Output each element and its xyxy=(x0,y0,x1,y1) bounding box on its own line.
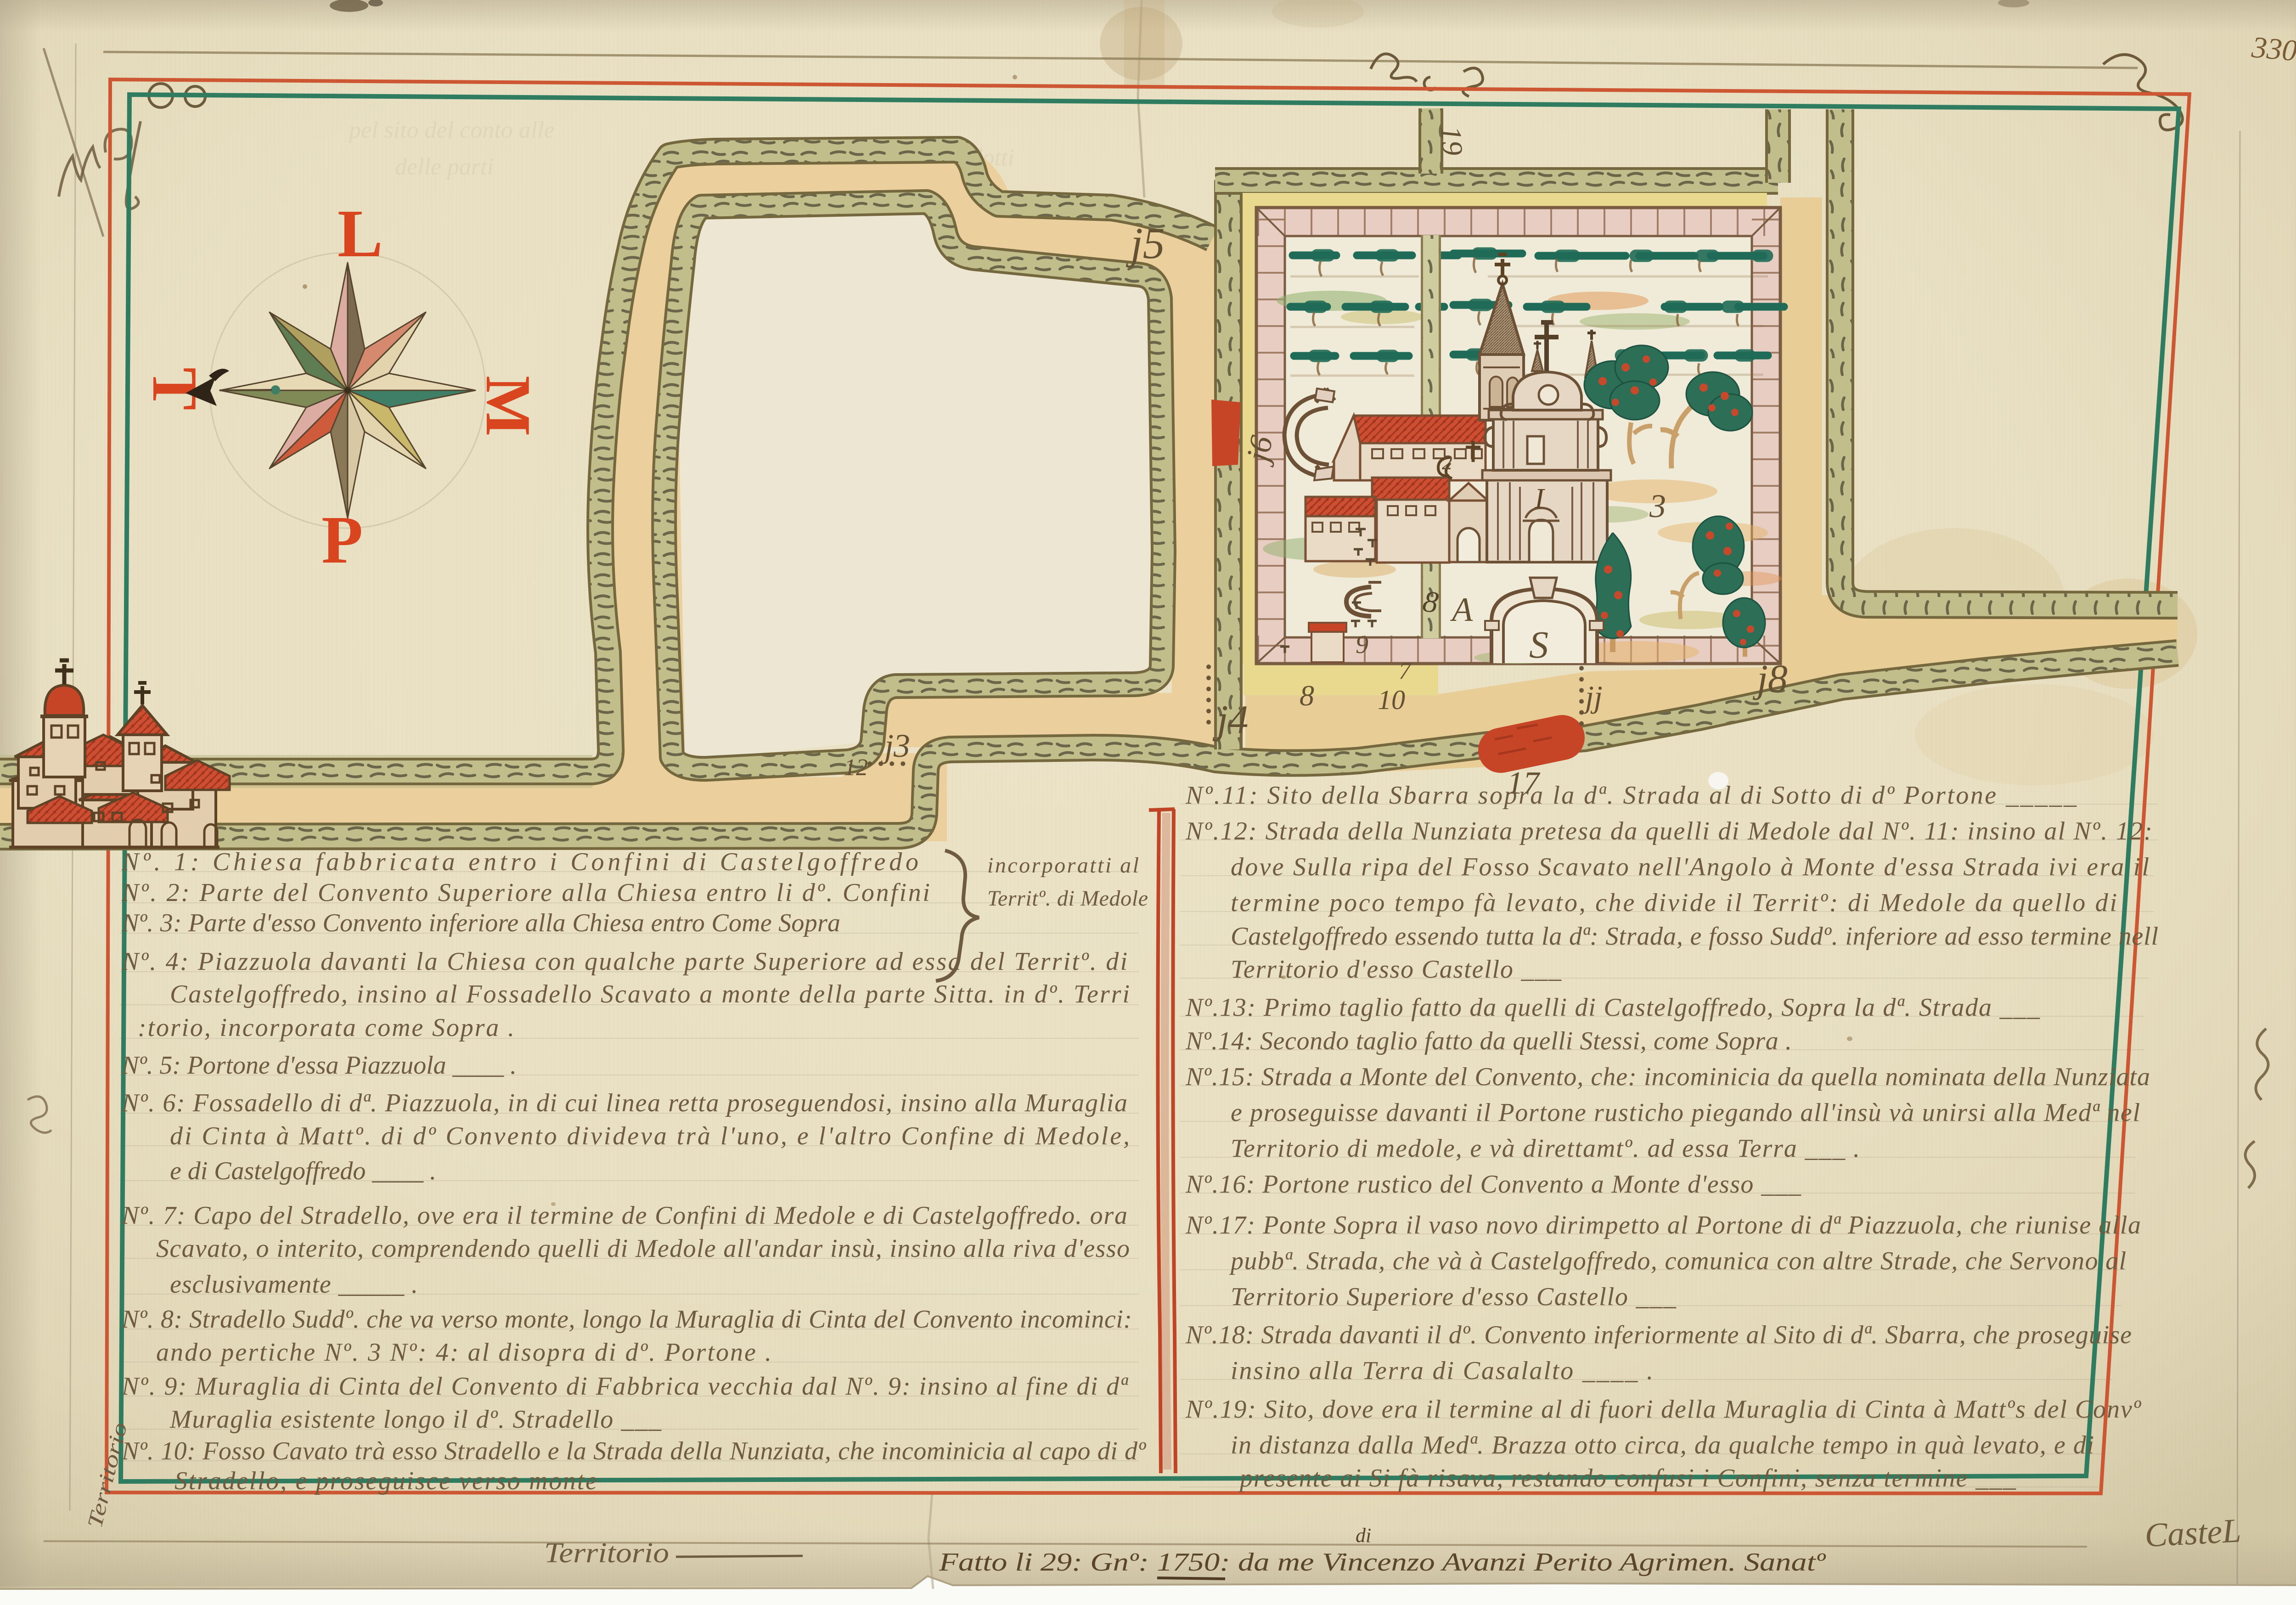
svg-text:incorporatti al: incorporatti al xyxy=(987,853,1139,878)
svg-text:M: M xyxy=(473,376,544,436)
svg-text:12: 12 xyxy=(844,755,868,781)
svg-text:Territº. di Medole: Territº. di Medole xyxy=(987,886,1148,911)
svg-text:Territorio: Territorio xyxy=(544,1537,669,1569)
svg-text:e di Castelgoffredo ____ .: e di Castelgoffredo ____ . xyxy=(170,1157,436,1185)
svg-text:Nº. 8: Stradello Suddº. che va: Nº. 8: Stradello Suddº. che va verso mon… xyxy=(121,1305,1132,1334)
svg-text:e proseguisse davanti il Porto: e proseguisse davanti il Portone rustich… xyxy=(1231,1098,2140,1127)
svg-text:di Cinta à Mattº. di dº Conven: di Cinta à Mattº. di dº Convento dividev… xyxy=(170,1122,1130,1150)
svg-text::torio, incorporata come Sopra: :torio, incorporata come Sopra . xyxy=(138,1014,514,1042)
svg-text:L: L xyxy=(338,196,383,271)
svg-text:Nº.16: Portone rustico del Con: Nº.16: Portone rustico del Convento a Mo… xyxy=(1185,1170,1801,1199)
svg-text:P: P xyxy=(321,502,363,578)
svg-text:Nº.12: Strada della Nunziata p: Nº.12: Strada della Nunziata pretesa da … xyxy=(1185,817,2152,845)
svg-text:in distanza dalla Medª. Brazza: in distanza dalla Medª. Brazza otto circ… xyxy=(1231,1431,2094,1459)
svg-text:Nº. 5: Portone d'essa Piazzuol: Nº. 5: Portone d'essa Piazzuola ____ . xyxy=(121,1051,517,1080)
svg-text:j5: j5 xyxy=(1125,219,1165,268)
svg-text:pel sito del conto alle: pel sito del conto alle xyxy=(347,117,555,143)
svg-text:j3: j3 xyxy=(881,727,910,764)
svg-text:3: 3 xyxy=(1649,488,1666,524)
svg-text:Nº.14: Secondo taglio fatto da: Nº.14: Secondo taglio fatto da quelli St… xyxy=(1185,1027,1792,1055)
svg-text:8: 8 xyxy=(1300,679,1314,712)
svg-text:7: 7 xyxy=(1399,658,1412,684)
svg-text:Nº.17: Ponte Sopra il vaso nov: Nº.17: Ponte Sopra il vaso novo dirimpet… xyxy=(1185,1211,2141,1239)
svg-text:Nº. 3: Parte d'esso Convento i: Nº. 3: Parte d'esso Convento inferiore a… xyxy=(121,909,840,937)
svg-text:Castelgoffredo, insino al Foss: Castelgoffredo, insino al Fossadello Sca… xyxy=(170,980,1130,1008)
svg-text:Nº. 7: Capo del Stradello, ove: Nº. 7: Capo del Stradello, ove era il te… xyxy=(121,1201,1127,1230)
svg-text:delle parti: delle parti xyxy=(395,154,494,180)
svg-text:presente ai Si fà risava, rest: presente ai Si fà risava, restando confu… xyxy=(1238,1464,2016,1492)
svg-text:Castelgoffredo essendo tutta l: Castelgoffredo essendo tutta la dª: Stra… xyxy=(1231,922,2158,951)
svg-text:Nº.11: Sito della Sbarra sopra: Nº.11: Sito della Sbarra sopra la dª. St… xyxy=(1185,781,2077,810)
svg-text:A: A xyxy=(1450,591,1473,629)
svg-text:Nº. 4: Piazzuola davanti la Ch: Nº. 4: Piazzuola davanti la Chiesa con q… xyxy=(121,947,1127,976)
svg-text:Nº. 6: Fossadello di dª. Piazz: Nº. 6: Fossadello di dª. Piazzuola, in d… xyxy=(121,1089,1127,1117)
svg-text:10: 10 xyxy=(1378,685,1405,715)
svg-text:di: di xyxy=(1356,1524,1371,1547)
svg-text:Territorio d'esso Castello ___: Territorio d'esso Castello ___ xyxy=(1231,955,1562,984)
svg-text:19: 19 xyxy=(1435,125,1469,157)
svg-text:Nº.15: Strada a Monte del Conv: Nº.15: Strada a Monte del Convento, che:… xyxy=(1185,1063,2150,1091)
svg-text:Nº.13: Primo taglio fatto da q: Nº.13: Primo taglio fatto da quelli di C… xyxy=(1185,993,2040,1022)
svg-text:Scavato, o interito, comprende: Scavato, o interito, comprendendo quelli… xyxy=(156,1234,1130,1263)
svg-text:I: I xyxy=(1534,483,1546,514)
svg-text:S: S xyxy=(1529,624,1548,666)
svg-text:CasteL: CasteL xyxy=(2144,1512,2242,1554)
svg-text:Nº. 10: Fosso Cavato trà esso: Nº. 10: Fosso Cavato trà esso Stradello … xyxy=(121,1437,1147,1465)
svg-text:j4: j4 xyxy=(1212,698,1248,742)
svg-text:insino alla Terra di Casalalto: insino alla Terra di Casalalto ____ . xyxy=(1231,1357,1653,1385)
svg-text:Stradello, e proseguisce verso: Stradello, e proseguisce verso monte xyxy=(174,1467,597,1495)
svg-text:Fatto li 29: Gnº: 1750: da me: Fatto li 29: Gnº: 1750: da me Vincenzo A… xyxy=(939,1548,1826,1577)
svg-text:pubbª. Strada, che và à Castel: pubbª. Strada, che và à Castelgoffredo, … xyxy=(1229,1247,2126,1275)
svg-text:9: 9 xyxy=(1356,631,1368,659)
svg-text:330: 330 xyxy=(2250,30,2296,68)
svg-text:Nº.18: Strada davanti il dº. C: Nº.18: Strada davanti il dº. Convento in… xyxy=(1185,1321,2132,1349)
svg-text:Territorio di medole, e và dir: Territorio di medole, e và direttamtº. a… xyxy=(1231,1134,1860,1163)
svg-text:esclusivamente _____ .: esclusivamente _____ . xyxy=(170,1270,418,1299)
svg-text:ando pertiche Nº. 3 Nº: 4: al: ando pertiche Nº. 3 Nº: 4: al disopra di… xyxy=(156,1338,771,1367)
svg-text:2: 2 xyxy=(1442,451,1452,474)
svg-text:Nº. 9: Muraglia di Cinta del C: Nº. 9: Muraglia di Cinta del Convento di… xyxy=(121,1372,1129,1401)
svg-text:termine poco tempo fà levato,: termine poco tempo fà levato, che divide… xyxy=(1231,889,2117,917)
